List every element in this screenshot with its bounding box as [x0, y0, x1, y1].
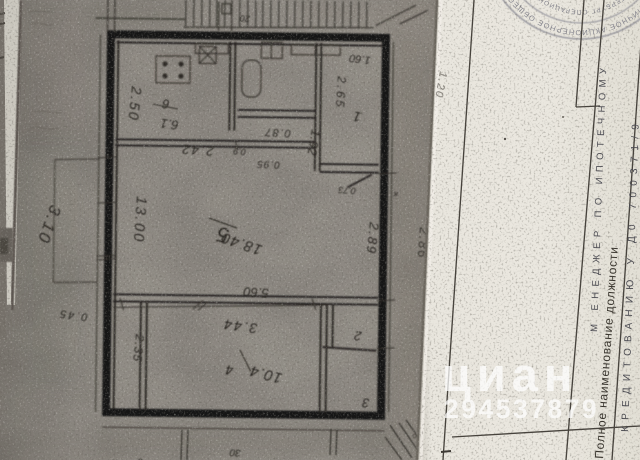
svg-text:294537879: 294537879	[444, 394, 599, 424]
